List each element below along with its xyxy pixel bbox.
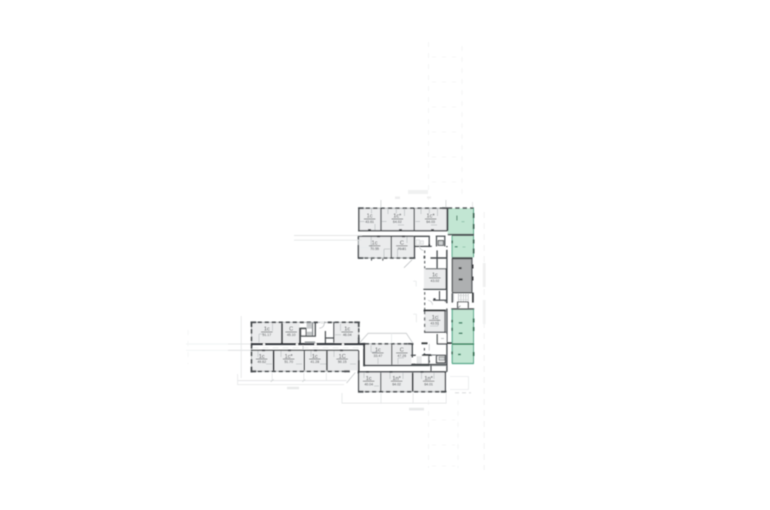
- svg-text:64.02: 64.02: [393, 220, 402, 224]
- svg-text:70.55: 70.55: [370, 247, 379, 251]
- svg-text:41.28: 41.28: [310, 360, 319, 364]
- svg-text:33.47: 33.47: [374, 354, 383, 358]
- svg-text:50.15: 50.15: [338, 360, 347, 364]
- svg-text:64.02: 64.02: [392, 382, 401, 386]
- svg-text:70.81: 70.81: [398, 247, 407, 251]
- svg-text:49.62: 49.62: [257, 360, 266, 364]
- svg-text:43.02: 43.02: [431, 279, 440, 283]
- svg-text:40.04: 40.04: [364, 382, 373, 386]
- svg-text:45.10: 45.10: [287, 333, 296, 337]
- svg-text:43.61: 43.61: [365, 220, 374, 224]
- svg-text:51.70: 51.70: [284, 360, 293, 364]
- svg-text:51.17: 51.17: [262, 333, 271, 337]
- svg-text:43.51: 43.51: [430, 321, 439, 325]
- svg-text:64.03: 64.03: [426, 220, 435, 224]
- svg-text:47.26: 47.26: [397, 354, 406, 358]
- svg-text:64.01: 64.01: [424, 382, 433, 386]
- svg-text:46.04: 46.04: [343, 333, 352, 337]
